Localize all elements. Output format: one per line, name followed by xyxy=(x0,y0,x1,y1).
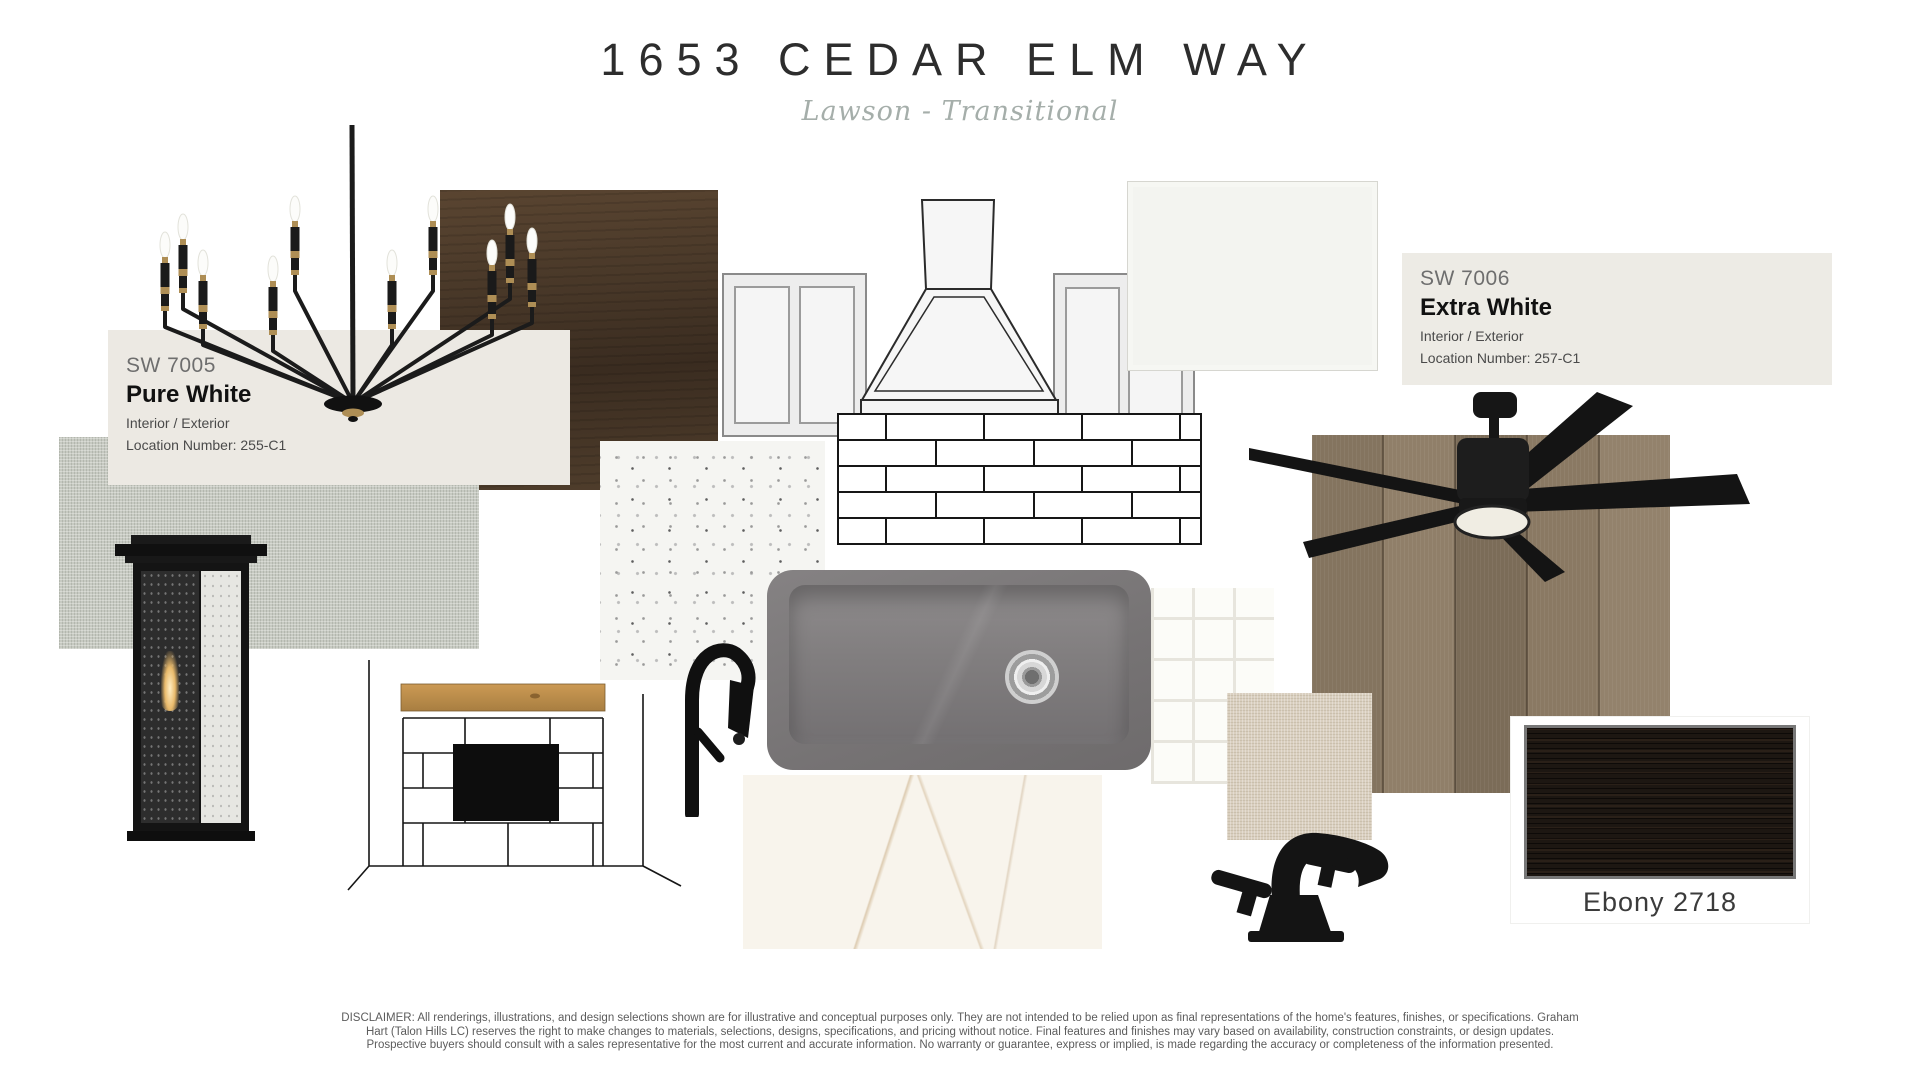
faucet-base xyxy=(1248,931,1344,942)
paint-swatch-sw7006: SW 7006 Extra White Interior / Exterior … xyxy=(1402,253,1832,385)
fireplace-drawing xyxy=(345,660,685,895)
bathroom-faucet-image xyxy=(1210,795,1415,945)
sink-drain xyxy=(1005,650,1059,704)
paint-location: Location Number: 255-C1 xyxy=(126,437,570,453)
mood-board: 1653 CEDAR ELM WAY Lawson - Transitional… xyxy=(0,0,1920,1080)
cabinet-door-panel xyxy=(1065,287,1120,430)
disclaimer-line-2: Hart (Talon Hills LC) reserves the right… xyxy=(295,1026,1625,1040)
kitchen-faucet-image xyxy=(652,622,772,817)
fireplace-mantel-beam xyxy=(401,684,605,711)
lantern-cornice-lip xyxy=(125,556,257,563)
ebony-stain-card: Ebony 2718 xyxy=(1510,716,1810,924)
lantern-base xyxy=(127,831,255,841)
fireplace-firebox xyxy=(453,744,559,821)
faucet-body xyxy=(1258,895,1332,935)
chandelier-hub xyxy=(324,396,382,423)
disclaimer: DISCLAIMER: All renderings, illustration… xyxy=(0,1012,1920,1053)
kitchen-sink-image xyxy=(767,570,1151,770)
cabinet-door-panel xyxy=(799,286,855,424)
range-hood-outline xyxy=(860,193,1060,428)
cabinet-door-panel xyxy=(734,286,790,424)
lantern-body xyxy=(133,563,249,831)
ceiling-fan-image xyxy=(1245,390,1795,600)
fan-motor xyxy=(1457,392,1529,516)
bathroom-faucet-drawing xyxy=(1210,795,1415,945)
paint-code: SW 7006 xyxy=(1420,267,1832,291)
paint-location: Location Number: 257-C1 xyxy=(1420,350,1832,366)
fireplace-elevation xyxy=(345,660,685,895)
kitchen-faucet-drawing xyxy=(652,622,772,817)
faucet-left-handle xyxy=(1210,868,1273,920)
marble-slab-sample xyxy=(743,775,1102,949)
white-slab-panel-sample xyxy=(1127,181,1378,371)
lantern-cornice xyxy=(115,544,267,556)
faucet-handle xyxy=(698,732,720,758)
page-subtitle: Lawson - Transitional xyxy=(0,96,1920,127)
disclaimer-line-1: DISCLAIMER: All renderings, illustration… xyxy=(295,1012,1625,1026)
lantern-edison-bulb xyxy=(161,651,179,711)
faucet-spray-head xyxy=(728,680,754,738)
disclaimer-line-3: Prospective buyers should consult with a… xyxy=(295,1039,1625,1053)
chandelier-image xyxy=(115,125,585,430)
chandelier-candles xyxy=(160,196,537,335)
lantern-glass-side xyxy=(201,571,241,823)
wall-lantern-image xyxy=(115,535,267,843)
subway-tile-pattern xyxy=(837,413,1202,545)
page-title: 1653 CEDAR ELM WAY xyxy=(0,34,1920,86)
mantel-knot xyxy=(530,694,540,699)
range-hood-drawing xyxy=(860,193,1060,428)
board-header: 1653 CEDAR ELM WAY Lawson - Transitional xyxy=(0,34,1920,127)
chandelier-rod xyxy=(352,125,353,399)
subway-tile-drawing xyxy=(837,413,1202,545)
ebony-stain-label: Ebony 2718 xyxy=(1511,887,1809,918)
sink-basin xyxy=(789,585,1129,744)
ebony-stain-swatch xyxy=(1524,725,1796,879)
paint-usage: Interior / Exterior xyxy=(1420,328,1832,344)
chandelier-drawing xyxy=(115,125,585,430)
fan-light xyxy=(1455,506,1529,538)
paint-name: Extra White xyxy=(1420,294,1832,322)
chandelier-arms xyxy=(165,275,532,403)
lantern-cap xyxy=(131,535,251,544)
ceiling-fan-drawing xyxy=(1245,390,1795,600)
